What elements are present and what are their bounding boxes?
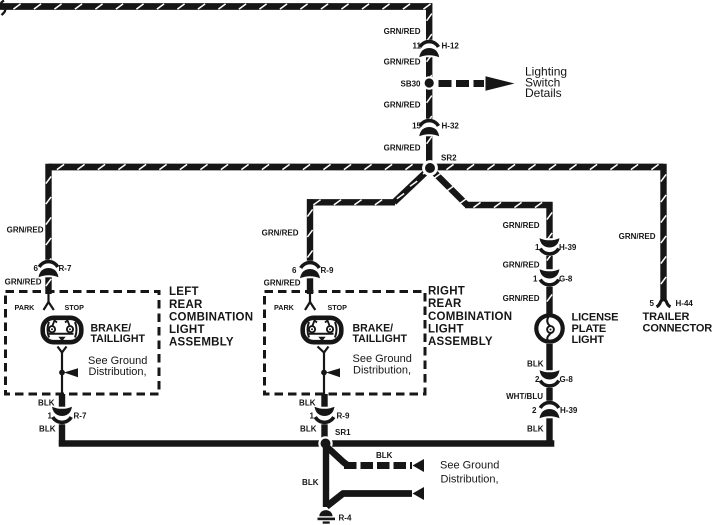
svg-text:ASSEMBLY: ASSEMBLY	[169, 337, 234, 349]
svg-text:SR1: SR1	[335, 428, 351, 437]
svg-text:RIGHT: RIGHT	[428, 286, 465, 298]
svg-text:BLK: BLK	[376, 451, 393, 460]
svg-text:LIGHT: LIGHT	[169, 324, 205, 336]
svg-text:CONNECTOR: CONNECTOR	[643, 322, 713, 334]
svg-text:SB30: SB30	[400, 79, 421, 88]
svg-text:5: 5	[650, 299, 655, 308]
svg-text:GRN/RED: GRN/RED	[384, 27, 421, 36]
svg-text:GRN/RED: GRN/RED	[5, 278, 42, 287]
svg-text:6: 6	[34, 264, 39, 273]
svg-text:SR2: SR2	[441, 153, 457, 162]
svg-text:1: 1	[533, 275, 538, 284]
svg-text:GRN/RED: GRN/RED	[384, 143, 421, 152]
svg-text:COMBINATION: COMBINATION	[428, 311, 512, 323]
svg-text:BLK: BLK	[299, 399, 316, 408]
svg-text:GRN/RED: GRN/RED	[7, 225, 44, 234]
svg-text:BLK: BLK	[39, 425, 56, 434]
svg-text:GRN/RED: GRN/RED	[384, 101, 421, 110]
svg-text:Distribution,: Distribution,	[441, 473, 499, 485]
svg-text:LIGHT: LIGHT	[572, 334, 605, 346]
svg-text:G-8: G-8	[560, 375, 574, 384]
svg-text:1: 1	[310, 412, 315, 421]
svg-text:Distribution,: Distribution,	[353, 364, 411, 376]
svg-text:H-39: H-39	[560, 406, 578, 415]
svg-text:STOP: STOP	[65, 303, 85, 312]
svg-text:Distribution,: Distribution,	[89, 366, 147, 378]
svg-text:2: 2	[535, 375, 540, 384]
svg-text:LEFT: LEFT	[169, 286, 199, 298]
svg-text:BLK: BLK	[302, 478, 319, 487]
svg-text:G-8: G-8	[559, 275, 573, 284]
svg-text:LIGHT: LIGHT	[428, 323, 464, 335]
svg-text:PARK: PARK	[274, 303, 295, 312]
svg-text:See Ground: See Ground	[88, 355, 147, 367]
svg-text:BLK: BLK	[300, 425, 317, 434]
svg-text:1: 1	[535, 243, 540, 252]
svg-text:GRN/RED: GRN/RED	[619, 232, 656, 241]
svg-text:Details: Details	[525, 86, 562, 100]
svg-text:H-12: H-12	[442, 42, 460, 51]
svg-text:BLK: BLK	[38, 399, 55, 408]
svg-text:15: 15	[412, 122, 421, 131]
svg-text:See Ground: See Ground	[440, 460, 499, 472]
svg-text:COMBINATION: COMBINATION	[169, 311, 253, 323]
svg-text:BLK: BLK	[527, 360, 544, 369]
svg-text:PLATE: PLATE	[572, 323, 607, 335]
svg-text:WHT/BLU: WHT/BLU	[506, 392, 543, 401]
svg-text:2: 2	[532, 406, 537, 415]
svg-text:ASSEMBLY: ASSEMBLY	[428, 336, 493, 348]
svg-text:R-9: R-9	[337, 412, 350, 421]
svg-text:See Ground: See Ground	[353, 353, 412, 365]
svg-text:GRN/RED: GRN/RED	[262, 228, 299, 237]
svg-text:REAR: REAR	[428, 298, 462, 310]
svg-text:1: 1	[48, 412, 53, 421]
svg-text:R-7: R-7	[59, 264, 72, 273]
svg-text:TAILLIGHT: TAILLIGHT	[91, 333, 146, 345]
svg-text:PARK: PARK	[15, 303, 36, 312]
svg-text:GRN/RED: GRN/RED	[503, 261, 540, 270]
svg-text:R-9: R-9	[321, 266, 334, 275]
svg-text:H-39: H-39	[559, 243, 577, 252]
svg-text:TAILLIGHT: TAILLIGHT	[353, 333, 408, 345]
svg-text:R-4: R-4	[339, 513, 352, 522]
svg-text:GRN/RED: GRN/RED	[503, 221, 540, 230]
svg-text:H-44: H-44	[676, 299, 694, 308]
svg-text:TRAILER: TRAILER	[643, 311, 690, 323]
svg-text:GRN/RED: GRN/RED	[384, 58, 421, 67]
svg-text:GRN/RED: GRN/RED	[503, 294, 540, 303]
svg-text:LICENSE: LICENSE	[572, 312, 619, 324]
svg-text:STOP: STOP	[328, 303, 348, 312]
svg-text:H-32: H-32	[442, 122, 460, 131]
svg-text:BLK: BLK	[527, 425, 544, 434]
svg-text:GRN/RED: GRN/RED	[264, 279, 301, 288]
svg-text:R-7: R-7	[74, 412, 87, 421]
svg-text:6: 6	[292, 266, 297, 275]
svg-text:11: 11	[413, 42, 422, 51]
svg-text:REAR: REAR	[169, 299, 203, 311]
